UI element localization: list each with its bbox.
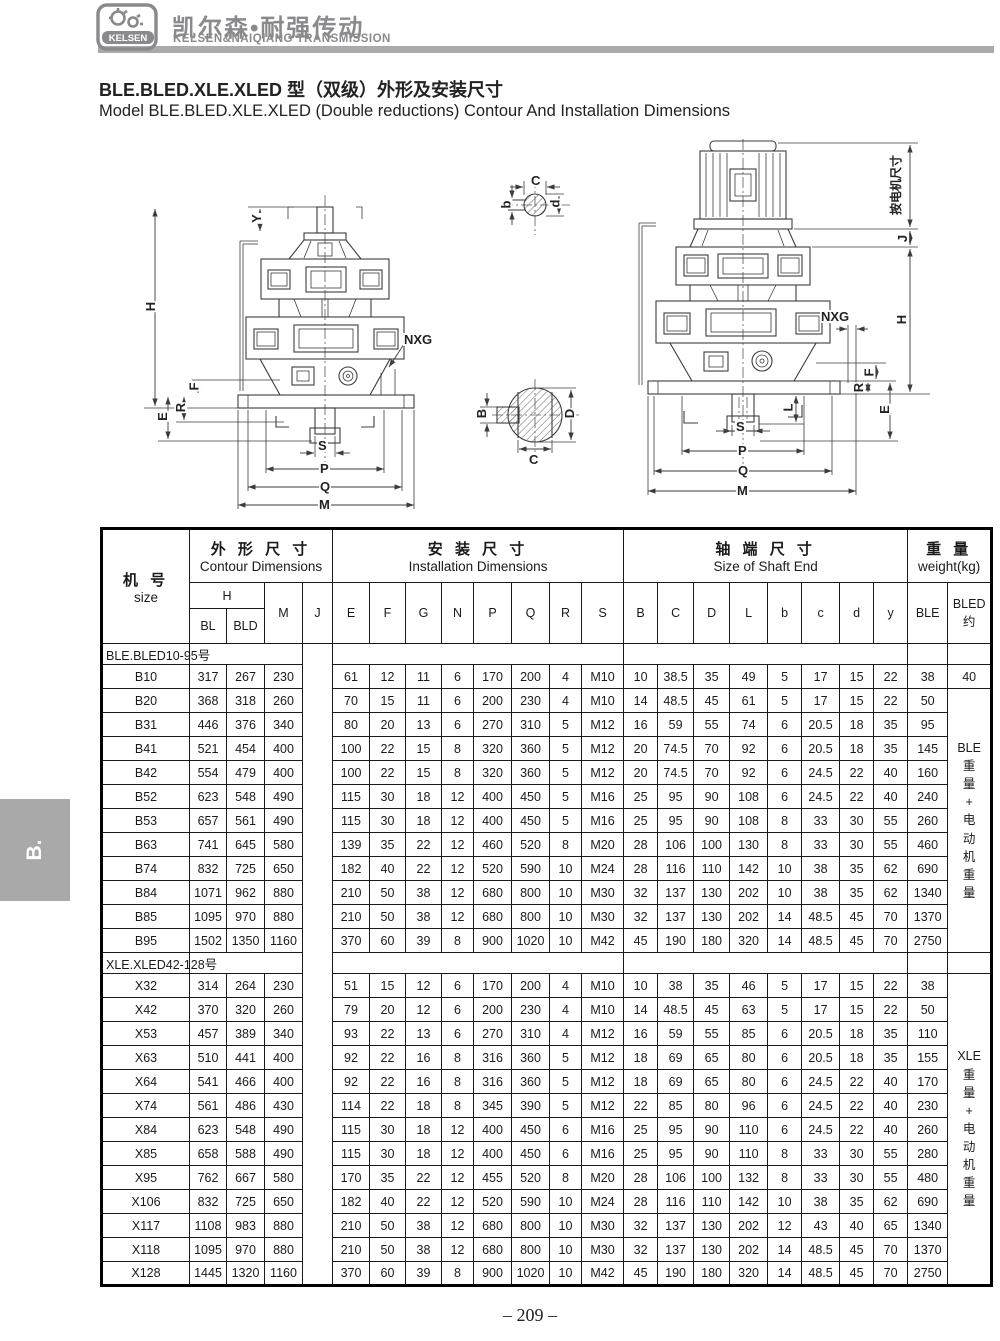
dim-label-s-right: S [735, 420, 746, 433]
page-title-cn: BLE.BLED.XLE.XLED 型（双级）外形及安装尺寸 [99, 76, 503, 102]
catalog-page: KELSEN 凯尔森•耐强传动 KELSEN&NAIQIANG TRANSMIS… [0, 0, 1000, 1341]
row-size: X64 [102, 1070, 190, 1094]
col-header-b: b [768, 583, 802, 644]
dim-label-r: R [174, 402, 187, 413]
col-header-P: P [474, 583, 512, 644]
table-header: 机 号 size 外 形 尺 寸Contour Dimensions 安 装 尺… [102, 529, 992, 644]
group-header-installation: 安 装 尺 寸Installation Dimensions [333, 529, 624, 583]
technical-drawings: Y H F R E NXG S P Q M C b d B D C 按电机尺寸 … [98, 133, 990, 525]
logo-text: KELSEN [109, 33, 148, 44]
row-size: B42 [102, 761, 190, 785]
dim-label-h: H [144, 301, 157, 312]
table-row: B7483272565018240221252059010M2428116110… [102, 857, 992, 881]
dim-label-e-right: E [878, 404, 891, 415]
group-header-shaft-end: 轴 端 尺 寸Size of Shaft End [624, 529, 908, 583]
table-row: B1031726723061121161702004M101038.535495… [102, 665, 992, 689]
col-header-BLE: BLE [908, 583, 948, 644]
group-header-weight: 重 量weight(kg) [908, 529, 992, 583]
table-row: B536575614901153018124004505M16259590108… [102, 809, 992, 833]
section-label: BLE.BLED10-95号 [102, 644, 190, 665]
col-header-c: c [802, 583, 840, 644]
kelsen-logo-icon: KELSEN [96, 3, 160, 51]
dim-label-motor-size: 按电机尺寸 [890, 154, 902, 216]
dim-label-s: S [317, 439, 328, 452]
dim-label-f-right: F [862, 368, 875, 378]
dim-label-p-right: P [737, 444, 748, 457]
left-reducer-drawing [144, 195, 414, 509]
table-row: B637416455801393522124605208M20281061001… [102, 833, 992, 857]
dim-label-f: F [187, 382, 200, 392]
row-size: X106 [102, 1190, 190, 1214]
table-row: B84107196288021050381268080010M303213713… [102, 881, 992, 905]
dim-label-nxg-right: NXG [820, 310, 850, 323]
col-header-D: D [694, 583, 730, 644]
col-header-H: H [190, 583, 265, 609]
drawings-linework [98, 133, 990, 525]
table-row: B9515021350116037060398900102010M4245190… [102, 929, 992, 953]
table-row: B2036831826070151162002304M101448.545615… [102, 689, 992, 713]
dim-label-b-cap: B [475, 408, 488, 419]
table-body: BLE.BLED10-95号B1031726723061121161702004… [102, 644, 992, 1286]
dim-label-e: E [156, 411, 169, 422]
dim-label-j-right: J [896, 234, 909, 243]
dim-label-d-small: d [548, 199, 561, 209]
col-header-F: F [370, 583, 406, 644]
table-row: X846235484901153018124004506M16259590110… [102, 1118, 992, 1142]
col-header-d: d [840, 583, 874, 644]
col-header-B: B [624, 583, 658, 644]
row-size: X118 [102, 1238, 190, 1262]
row-size: B20 [102, 689, 190, 713]
dimensions-table: 机 号 size 外 形 尺 寸Contour Dimensions 安 装 尺… [100, 527, 993, 1287]
row-size: X117 [102, 1214, 190, 1238]
row-size: X63 [102, 1046, 190, 1070]
table-row: X957626675801703522124555208M20281061001… [102, 1166, 992, 1190]
col-header-R: R [550, 583, 582, 644]
right-reducer-drawing [639, 139, 930, 495]
col-header-L: L [730, 583, 768, 644]
section-tab-label: B. [23, 840, 47, 861]
row-size: B85 [102, 905, 190, 929]
header-rule [98, 46, 994, 53]
col-header-BL: BL [190, 609, 227, 644]
dim-label-m: M [318, 498, 331, 511]
col-header-BLD: BLD [227, 609, 265, 644]
section-label: XLE.XLED42-128号 [102, 953, 190, 974]
dim-label-y: Y [250, 213, 263, 224]
dim-label-c-top: C [530, 174, 541, 187]
row-size: X53 [102, 1022, 190, 1046]
table-row: X118109597088021050381268080010M30321371… [102, 1238, 992, 1262]
brand-name-en: KELSEN&NAIQIANG TRANSMISSION [173, 33, 391, 45]
section-tab: B. [0, 799, 70, 901]
weight-note: XLE重量+电动机重量 [948, 974, 992, 1286]
dim-label-m-right: M [736, 484, 749, 497]
row-size: X42 [102, 998, 190, 1022]
table-row: X74561486430114221883453905M122285809662… [102, 1094, 992, 1118]
table-row: X5345738934093221362703104M1216595585620… [102, 1022, 992, 1046]
dim-label-nxg: NXG [403, 333, 433, 346]
col-header-M: M [265, 583, 303, 644]
bled-weight: 40 [948, 665, 992, 689]
table-row: X6454146640092221683163605M1218696580624… [102, 1070, 992, 1094]
row-size: X84 [102, 1118, 190, 1142]
table-row: X6351044140092221683163605M1218696580620… [102, 1046, 992, 1070]
row-size: B10 [102, 665, 190, 689]
table-row: B41521454400100221583203605M122074.57092… [102, 737, 992, 761]
col-header-E: E [333, 583, 370, 644]
page-number: – 209 – [0, 1305, 1000, 1326]
col-header-Q: Q [512, 583, 550, 644]
group-header-contour: 外 形 尺 寸Contour Dimensions [190, 529, 333, 583]
row-size: X128 [102, 1262, 190, 1286]
row-size: B31 [102, 713, 190, 737]
col-header-J: J [303, 583, 333, 644]
row-size: X32 [102, 974, 190, 998]
table-row: B85109597088021050381268080010M303213713… [102, 905, 992, 929]
dim-label-q-right: Q [737, 464, 749, 477]
dim-label-q: Q [319, 480, 331, 493]
col-header-N: N [442, 583, 474, 644]
dim-label-b-small: b [499, 200, 512, 210]
col-header-S: S [582, 583, 624, 644]
row-size: B74 [102, 857, 190, 881]
row-size: X85 [102, 1142, 190, 1166]
dim-label-p: P [319, 462, 330, 475]
col-header-BLED: BLED约 [948, 583, 992, 644]
row-size: B52 [102, 785, 190, 809]
weight-note: BLE重量+电动机重量 [948, 689, 992, 953]
row-size: X95 [102, 1166, 190, 1190]
table-row: X117110898388021050381268080010M30321371… [102, 1214, 992, 1238]
col-header-G: G [406, 583, 442, 644]
dim-label-l-right: L [781, 403, 794, 413]
row-size: B41 [102, 737, 190, 761]
table-row: B526235484901153018124004505M16259590108… [102, 785, 992, 809]
col-header-y: y [874, 583, 908, 644]
table-row: B42554479400100221583203605M122074.57092… [102, 761, 992, 785]
row-size: X74 [102, 1094, 190, 1118]
dim-label-r-right: R [852, 382, 865, 393]
section-label-row: XLE.XLED42-128号 [102, 953, 992, 974]
col-header-C: C [658, 583, 694, 644]
row-size: B63 [102, 833, 190, 857]
table-row: X10683272565018240221252059010M242811611… [102, 1190, 992, 1214]
table-row: B3144637634080201362703105M1216595574620… [102, 713, 992, 737]
table-row: X3231426423051151261702004M1010383546517… [102, 974, 992, 998]
row-size: B84 [102, 881, 190, 905]
dim-label-c-bottom: C [528, 453, 539, 466]
row-size: B95 [102, 929, 190, 953]
row-size: B53 [102, 809, 190, 833]
page-title-en: Model BLE.BLED.XLE.XLED (Double reductio… [99, 102, 730, 121]
table-row: X856585884901153018124004506M16259590110… [102, 1142, 992, 1166]
col-header-size: 机 号 size [102, 529, 190, 644]
table-row: X4237032026079201262002304M101448.545635… [102, 998, 992, 1022]
table-row: X12814451320116037060398900102010M424519… [102, 1262, 992, 1286]
section-label-row: BLE.BLED10-95号 [102, 644, 992, 665]
dim-label-d-cap: D [563, 408, 576, 419]
dim-label-h-right: H [895, 314, 908, 325]
